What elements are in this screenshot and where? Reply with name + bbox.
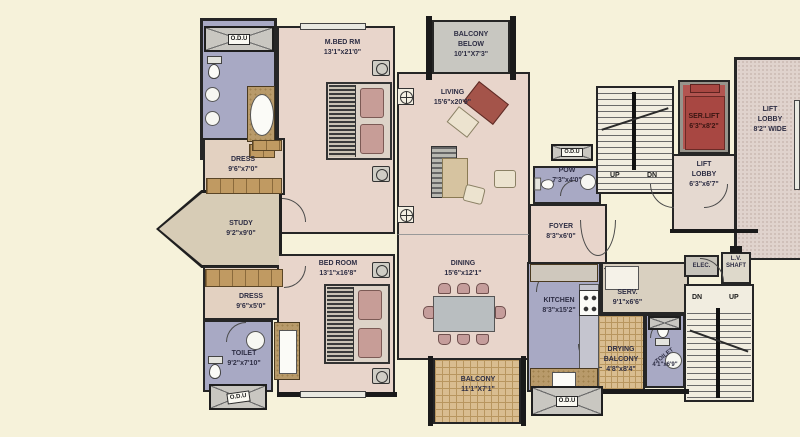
room-dims: 9'2"x7'10" (211, 359, 277, 369)
room-name: TOILET (211, 349, 277, 359)
room-dims: 11'1"X7'1" (443, 385, 513, 395)
wall-drying-bottom (597, 389, 689, 394)
stair-divider-lower (716, 308, 720, 398)
room-name: DRESS (216, 292, 286, 302)
room-dims: 13'1"x16'8" (300, 269, 376, 279)
wall-balcony-below-left (426, 16, 432, 80)
room-name: STUDY (205, 219, 277, 229)
room-name: L.V. SHAFT (721, 256, 751, 270)
bed-pillow (358, 290, 382, 320)
room-dims: 15'6"x20'9" (415, 98, 490, 108)
dining-chair (438, 283, 451, 294)
stair-divider (632, 92, 636, 170)
odu-unit-pow: O.D.U (551, 144, 593, 161)
wardrobe-dress-upper-side (252, 140, 282, 151)
label-bedroom: BED ROOM 13'1"x16'8" (300, 259, 376, 279)
wardrobe-dress-lower (205, 269, 283, 287)
serv-counter (605, 266, 639, 290)
wall-balcony-below-right (510, 16, 516, 80)
room-dims: 9'2"x9'0" (205, 229, 277, 239)
sink-icon (205, 87, 220, 102)
room-name: LIVING (415, 88, 490, 98)
room-name: DINING (425, 259, 501, 269)
label-toilet-common: TOILET 4'1"x6'9" (642, 352, 688, 369)
room-dims: 7'3"x4'0" (541, 176, 593, 186)
room-name: KITCHEN (530, 296, 588, 306)
label-pow: POW 7'3"x4'0" (541, 166, 593, 186)
room-dims: 10'1"X7'3" (443, 50, 499, 60)
washer-crossed-box (648, 316, 681, 330)
nightstand (372, 60, 390, 76)
room-name: FOYER (526, 222, 596, 232)
label-foyer: FOYER 8'3"x6'0" (526, 222, 596, 242)
odu-label: O.D.U (556, 396, 579, 407)
odu-unit-bottom-mid: O.D.U (531, 386, 603, 416)
label-dining: DINING 15'6"x12'1" (425, 259, 501, 279)
shower-tray (279, 330, 297, 374)
label-kitchen: KITCHEN 8'3"x15'2" (530, 296, 588, 316)
label-elec: ELEC. (684, 262, 719, 271)
room-name: M.BED RM (305, 38, 380, 48)
bed-pillow (360, 124, 384, 154)
label-balcony: BALCONY 11'1"X7'1" (443, 375, 513, 395)
room-dims: 8'3"x15'2" (530, 306, 588, 316)
wall-hall-top (670, 229, 758, 233)
label-lift-lobby-wide: LIFT LOBBY 8'2" WIDE (750, 105, 790, 135)
armchair (494, 170, 516, 188)
stair-dn-marker: DN (692, 294, 702, 301)
odu-label: O.D.U (228, 34, 251, 45)
room-name: ELEC. (684, 262, 719, 271)
dining-table (433, 296, 495, 332)
door-arc (598, 220, 616, 256)
kitchen-sink (552, 372, 576, 387)
room-name: POW (541, 166, 593, 176)
room-dims: 8'2" WIDE (750, 125, 790, 135)
ser-lift-door (690, 84, 720, 93)
dining-chair (457, 334, 470, 345)
master-bed (326, 82, 392, 160)
room-name: SERV. (600, 288, 655, 298)
room-name: DRESS (210, 155, 276, 165)
stair-up-marker: UP (610, 172, 620, 179)
room-dims: 6'3"x6'7" (685, 180, 723, 190)
bed-headboard (329, 85, 356, 157)
lv-shaft-cap (730, 246, 742, 253)
sink-icon (205, 111, 220, 126)
dining-chair (476, 334, 489, 345)
fan-icon (397, 88, 414, 105)
dining-chair (423, 306, 434, 319)
room-name: BED ROOM (300, 259, 376, 269)
room-name: BALCONY BELOW (443, 30, 499, 50)
room-name: LIFT LOBBY (685, 160, 723, 180)
dining-chair (457, 283, 470, 294)
bed-pillow (358, 328, 382, 358)
room-name: BALCONY (443, 375, 513, 385)
odu-label: O.D.U (561, 148, 582, 157)
stair-dn-marker: DN (647, 172, 657, 179)
label-ser-lift: SER.LIFT 6'3"x8'2" (679, 112, 729, 132)
sink-icon (246, 331, 265, 350)
label-lv-shaft: L.V. SHAFT (721, 256, 751, 270)
label-living: LIVING 15'6"x20'9" (415, 88, 490, 108)
nightstand (372, 166, 390, 182)
odu-unit-top-left: O.D.U (204, 26, 274, 52)
window-lobby-right (794, 100, 800, 190)
nightstand (372, 368, 390, 384)
label-toilet-master: TOILET 9'2"x7'10" (211, 349, 277, 369)
floor-plan: O.D.U O.D.U O.D.U O.D.U (0, 0, 800, 437)
wall-balcony-right (521, 356, 526, 426)
door-arc (650, 184, 674, 208)
label-serv: SERV. 9'1"x6'6" (600, 288, 655, 308)
bathtub-icon (250, 94, 274, 136)
label-drying-balcony: DRYING BALCONY 4'8"x8'4" (597, 345, 645, 375)
room-dims: 4'8"x8'4" (597, 365, 645, 375)
room-dims: 15'6"x12'1" (425, 269, 501, 279)
room-name: DRYING BALCONY (597, 345, 645, 365)
room-dims: 9'1"x6'6" (600, 298, 655, 308)
stair-up-marker: UP (729, 294, 739, 301)
window-bedroom-bottom (300, 391, 366, 398)
wardrobe-dress-upper (206, 178, 282, 194)
odu-label: O.D.U (226, 390, 250, 404)
room-name: SER.LIFT (679, 112, 729, 122)
room-dims: 9'6"x7'0" (210, 165, 276, 175)
kitchen-counter-top (530, 264, 598, 282)
wall-balcony-left (428, 356, 433, 426)
label-dress-lower: DRESS 9'6"x5'0" (216, 292, 286, 312)
label-dress-upper: DRESS 9'6"x7'0" (210, 155, 276, 175)
room-dims: 6'3"x8'2" (679, 122, 729, 132)
room-dims: 8'3"x6'0" (526, 232, 596, 242)
window-mbed-top (300, 23, 366, 30)
dining-chair (438, 334, 451, 345)
room-name: LIFT LOBBY (750, 105, 790, 125)
label-study: STUDY 9'2"x9'0" (205, 219, 277, 239)
dining-chair (495, 306, 506, 319)
room-dims: 13'1"x21'0" (305, 48, 380, 58)
fan-icon (397, 206, 414, 223)
label-balcony-below: BALCONY BELOW 10'1"X7'3" (443, 30, 499, 60)
dining-chair (476, 283, 489, 294)
odu-unit-bottom-left: O.D.U (209, 384, 267, 410)
toilet-wc-icon (207, 56, 222, 80)
bed-pillow (360, 88, 384, 118)
bed-headboard (327, 287, 354, 361)
room-dims: 9'6"x5'0" (216, 302, 286, 312)
bedroom-bed (324, 284, 390, 364)
label-mbed: M.BED RM 13'1"x21'0" (305, 38, 380, 58)
label-lift-lobby: LIFT LOBBY 6'3"x6'7" (685, 160, 723, 190)
